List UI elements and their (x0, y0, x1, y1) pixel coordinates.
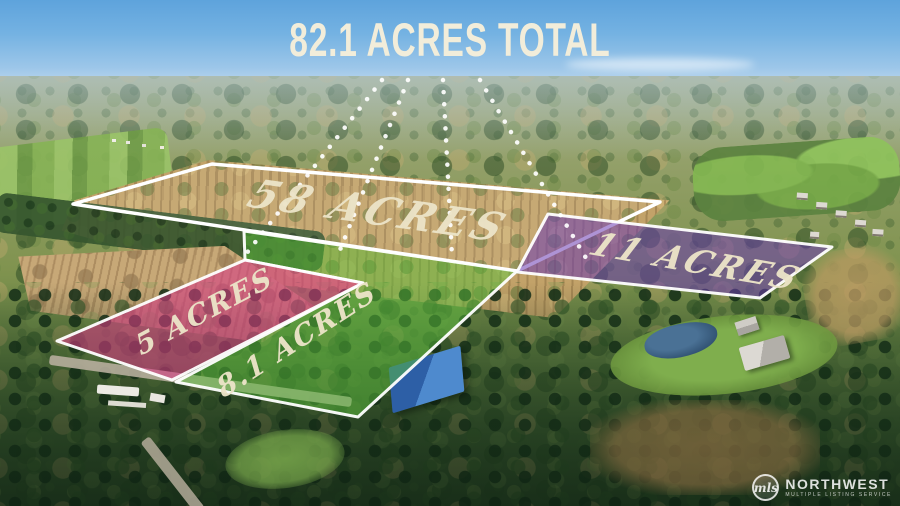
house-speck (835, 210, 846, 218)
mls-monogram: mls (754, 482, 778, 494)
watermark-text: NORTHWEST MULTIPLE LISTING SERVICE (785, 477, 892, 498)
house-speck (797, 192, 808, 200)
watermark-tagline: MULTIPLE LISTING SERVICE (785, 492, 892, 498)
aerial-listing-photo: 58 ACRES 11 ACRES 5 ACRES 8.1 ACRES 82.1… (0, 0, 900, 506)
total-acres-title: 82.1 ACRES TOTAL (0, 14, 900, 63)
house-speck (872, 229, 883, 237)
total-acres-title-text: 82.1 ACRES TOTAL (289, 14, 610, 68)
nwmls-watermark: mls NORTHWEST MULTIPLE LISTING SERVICE (752, 474, 892, 501)
distant-houses (112, 139, 116, 142)
house-speck (855, 220, 866, 228)
mls-logo-circle: mls (752, 474, 779, 501)
house-speck (816, 202, 827, 210)
watermark-brand: NORTHWEST (785, 477, 892, 492)
neighborhood-houses (791, 188, 900, 257)
house-speck (810, 231, 819, 239)
